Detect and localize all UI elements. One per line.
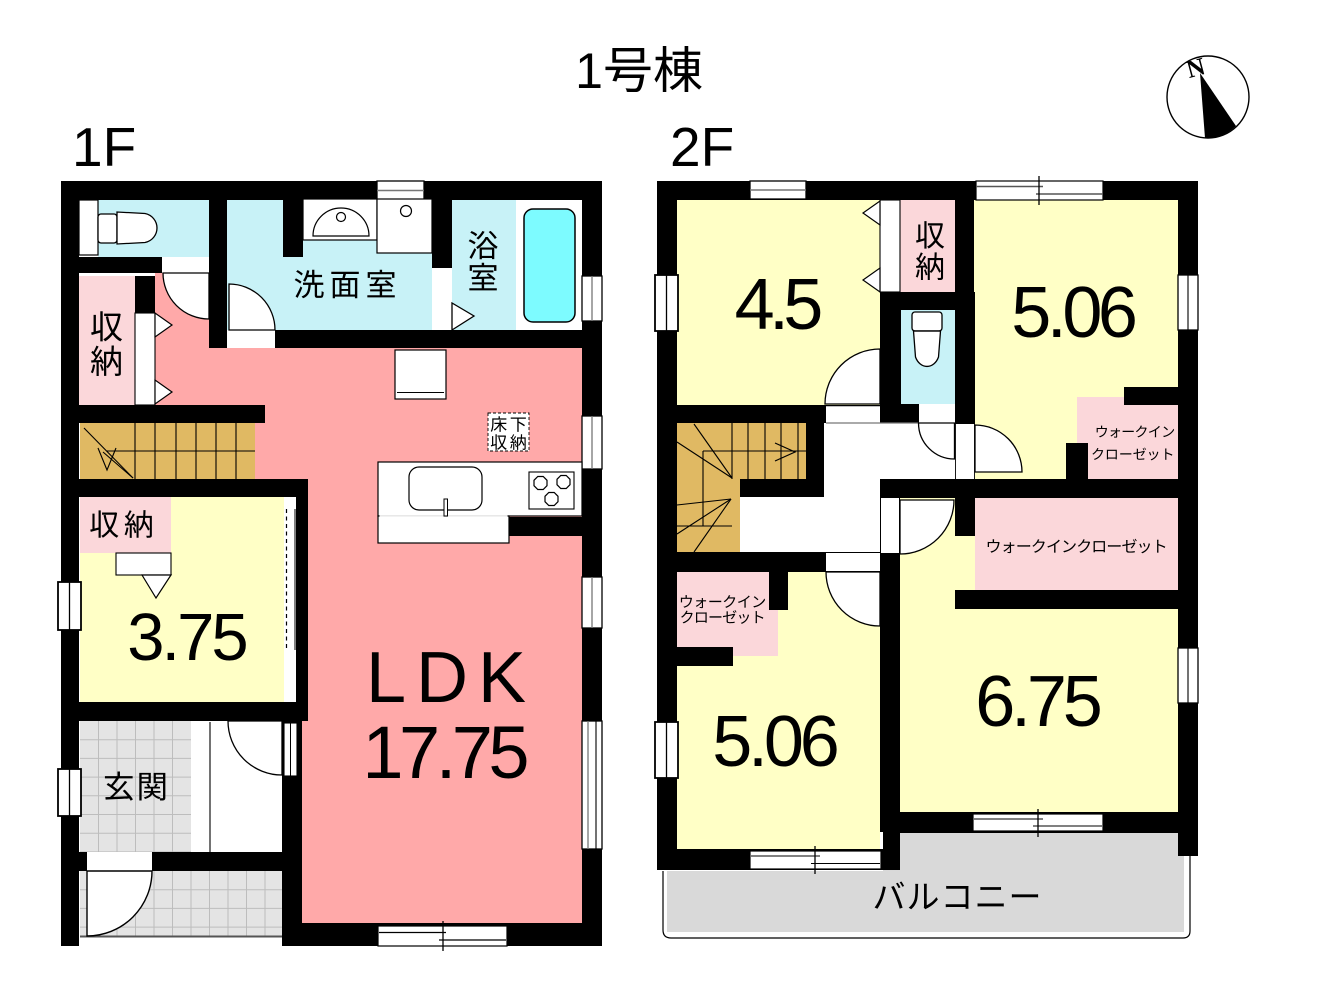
svg-text:LDK: LDK — [366, 638, 536, 718]
svg-text:6.75: 6.75 — [975, 662, 1100, 742]
svg-text:17.75: 17.75 — [362, 711, 527, 794]
svg-text:5.06: 5.06 — [1011, 273, 1135, 353]
svg-text:5.06: 5.06 — [712, 702, 836, 782]
svg-text:1F: 1F — [72, 116, 136, 178]
svg-text:4.5: 4.5 — [735, 265, 822, 345]
svg-text:1: 1 — [575, 43, 603, 99]
svg-text:3.75: 3.75 — [127, 600, 246, 675]
svg-text:2F: 2F — [670, 116, 734, 178]
